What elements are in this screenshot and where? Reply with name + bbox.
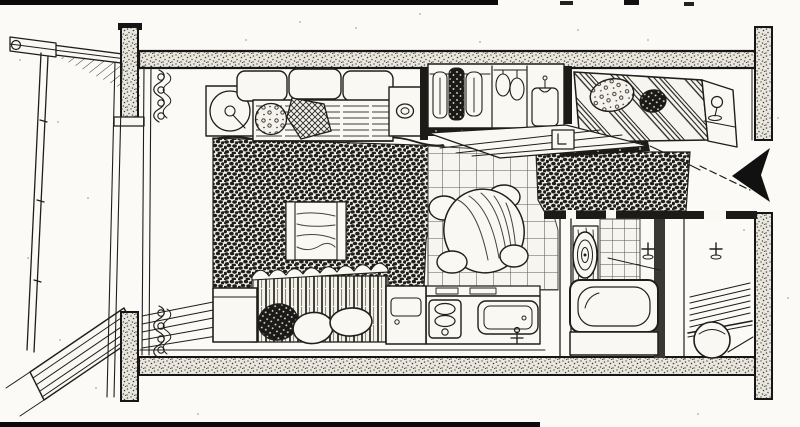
door-opening bbox=[704, 210, 726, 220]
side-table bbox=[389, 87, 422, 136]
washer-lid bbox=[391, 298, 421, 316]
headboard-shelf bbox=[702, 80, 737, 147]
scan-border-bottom bbox=[0, 422, 540, 427]
clock-box bbox=[552, 130, 574, 149]
sofa-back-cushion bbox=[289, 69, 341, 99]
kitchen-counter bbox=[386, 286, 540, 344]
low-table bbox=[286, 202, 346, 260]
left-column-top bbox=[121, 27, 138, 119]
stool bbox=[500, 245, 528, 267]
stool bbox=[437, 251, 467, 273]
drawing-canvas bbox=[0, 0, 800, 427]
right-column-top bbox=[755, 27, 772, 140]
shirt-on-hanger bbox=[532, 88, 558, 126]
bed-jamb bbox=[564, 66, 572, 124]
right-column-bottom bbox=[755, 213, 772, 399]
knit-pillow bbox=[256, 104, 287, 135]
dark-coat bbox=[449, 68, 464, 120]
bathtub bbox=[570, 280, 658, 332]
window-sill bbox=[114, 117, 144, 126]
sofa-back-cushion bbox=[237, 71, 287, 101]
tray bbox=[470, 288, 496, 294]
left-column-bottom bbox=[121, 312, 138, 401]
rear-rug-strip bbox=[536, 152, 690, 211]
tiled-wall bbox=[600, 219, 640, 289]
sofa-back-cushion bbox=[343, 71, 393, 101]
nightstand bbox=[213, 288, 257, 342]
sofa-area bbox=[206, 69, 422, 141]
scan-border-top bbox=[0, 0, 498, 5]
floor-plan-drawing bbox=[0, 0, 800, 427]
bottom-slab bbox=[139, 357, 757, 375]
round-basket bbox=[694, 322, 730, 358]
cutting-board bbox=[436, 288, 458, 294]
tub-front bbox=[570, 332, 658, 355]
